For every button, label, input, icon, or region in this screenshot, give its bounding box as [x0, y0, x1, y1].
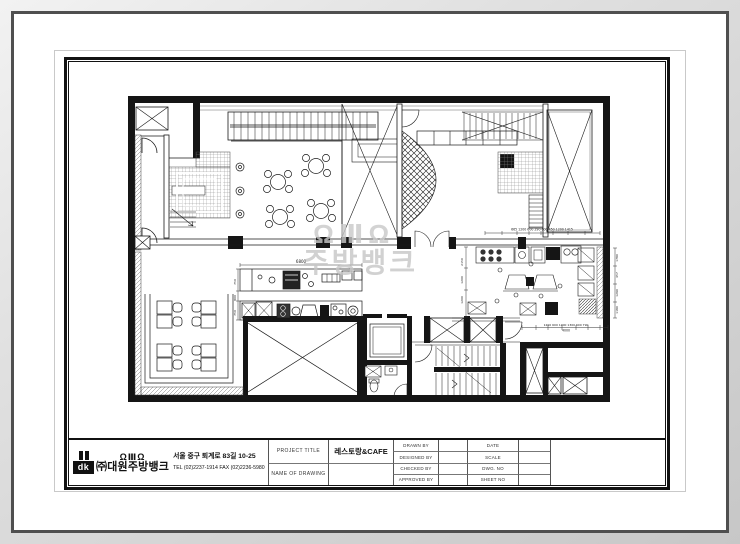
scale-label: SCALE [467, 451, 518, 462]
dwg-no-value [518, 463, 550, 474]
company-logo-letters: dk [73, 461, 94, 474]
drawn-by-value [438, 440, 467, 451]
kitchen-bank-watermark-text: 주방뱅크 [303, 249, 418, 277]
kitchen-bank-watermark: ΩⅢΩ 주방뱅크 [303, 221, 418, 277]
company-address: 서울 중구 퇴계로 83길 10-25 [173, 453, 265, 461]
framed-drawing: dk ΩⅢΩ 서울 중구 퇴계로 83길 10-25 ㈜대원주방뱅크 TEL (… [0, 0, 740, 544]
designed-by-value [438, 451, 467, 462]
dwg-no-label: DWG. NO [467, 463, 518, 474]
company-tel: TEL (02)2237-1914 FAX (02)2236-5980 [173, 465, 265, 472]
company-cell: dk ΩⅢΩ 서울 중구 퇴계로 83길 10-25 ㈜대원주방뱅크 TEL (… [69, 440, 268, 485]
company-logo-icon: dk [73, 451, 94, 474]
approved-by-label: APPROVED BY [393, 474, 438, 485]
checked-by-label: CHECKED BY [393, 463, 438, 474]
date-label: DATE [467, 440, 518, 451]
project-title-value: 레스토랑&CAFE [328, 440, 393, 463]
revision-cell [550, 440, 665, 485]
title-block: dk ΩⅢΩ 서울 중구 퇴계로 83길 10-25 ㈜대원주방뱅크 TEL (… [69, 438, 665, 485]
scale-value [518, 451, 550, 462]
drawn-by-label: DRAWN BY [393, 440, 438, 451]
date-value [518, 440, 550, 451]
name-of-drawing-value [328, 463, 393, 486]
kitchen-bank-logo-icon: ΩⅢΩ [303, 221, 418, 247]
approved-by-value [438, 474, 467, 485]
checked-by-value [438, 463, 467, 474]
sheet-no-label: SHEET NO [467, 474, 518, 485]
project-title-label: PROJECT TITLE [268, 440, 328, 463]
company-name: ㈜대원주방뱅크 [96, 462, 169, 473]
designed-by-label: DESIGNED BY [393, 451, 438, 462]
sheet-no-value [518, 474, 550, 485]
name-of-drawing-label: NAME OF DRAWING [268, 463, 328, 486]
